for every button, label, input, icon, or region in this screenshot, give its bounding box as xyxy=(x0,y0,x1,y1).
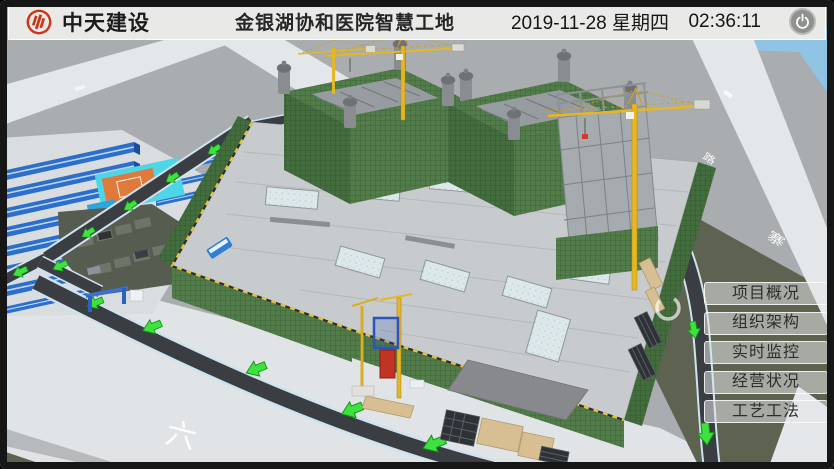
menu-item-live-monitoring[interactable]: 实时监控 xyxy=(704,341,828,364)
power-button[interactable] xyxy=(789,8,816,35)
power-icon xyxy=(794,13,811,30)
time-text: 02:36:11 xyxy=(688,4,761,39)
company-name: 中天建设 xyxy=(62,7,150,37)
header-bar: 中天建设 金银湖协和医院智慧工地 2019-11-28 星期四 02:36:11 xyxy=(8,3,826,40)
date-text: 2019-11-28 星期四 xyxy=(511,4,669,39)
side-menu: 项目概况 组织架构 实时监控 经营状况 工艺工法 xyxy=(704,282,828,423)
dashboard: 六 路 寨 中天建设 金银湖协和医院智慧工地 2019-11-28 星期四 02… xyxy=(0,0,834,469)
menu-item-project-overview[interactable]: 项目概况 xyxy=(704,282,828,305)
menu-item-business-status[interactable]: 经营状况 xyxy=(704,371,828,394)
menu-item-process-methods[interactable]: 工艺工法 xyxy=(704,400,828,423)
page-title: 金银湖协和医院智慧工地 xyxy=(235,4,455,39)
brand: 中天建设 xyxy=(25,4,150,39)
zhongtian-logo-icon xyxy=(25,8,53,36)
menu-item-organization[interactable]: 组织架构 xyxy=(704,312,828,335)
